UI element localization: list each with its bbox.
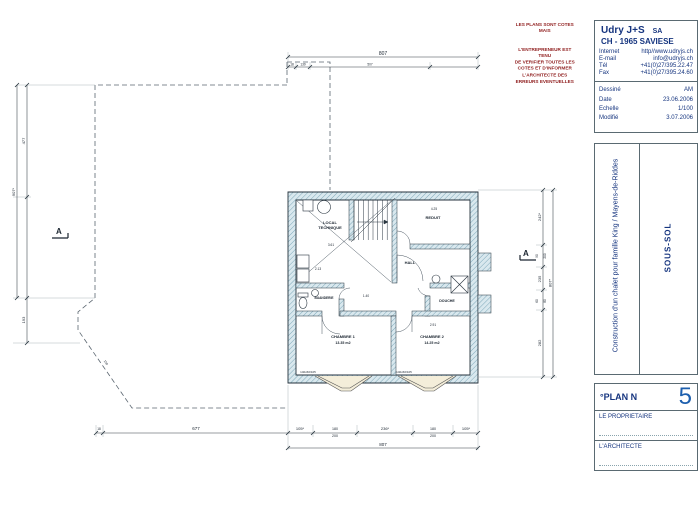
room-label-local2: TECHNIQUE (318, 225, 342, 230)
drawing-scale: 1/100 (678, 105, 693, 114)
dim-text: 807 (379, 51, 388, 57)
plan-number: 5 (679, 385, 692, 409)
disclaimer-line: ERREURS EVENTUELLES (512, 79, 578, 85)
shower-tray-icon (451, 276, 468, 293)
dim-text: 80 (543, 299, 547, 303)
dim-text: 18 (97, 427, 101, 431)
window-spec: 140x60/105 (300, 370, 316, 374)
room-label-buanderie: BUANDERIE (315, 296, 334, 300)
signature-line (599, 465, 693, 466)
dim-text: 242* (537, 212, 542, 221)
sheet-name: SOUS-SOL (664, 188, 673, 308)
dim-text: 193 (21, 316, 26, 323)
dim-text: 907* (11, 187, 16, 196)
firm-fax: +41(0)27/395.24.60 (640, 70, 693, 77)
titleblock-firm: Udry J+SSA CH - 1965 SAVIESE Internethtt… (594, 20, 698, 133)
dim-text: 180 (332, 427, 338, 431)
appliance-icon (297, 255, 309, 268)
dim-text: 200 (430, 434, 436, 438)
washbasin-icon (432, 275, 440, 283)
dim-text: 3.61 (328, 243, 334, 247)
window-spec: 140x60/105 (396, 370, 412, 374)
dim-text: 235 (537, 275, 542, 282)
drawn-by: AM (684, 86, 693, 95)
disclaimer-line: L'ENTREPRENEUR EST TENU (512, 47, 578, 60)
dim-text: 200 (332, 434, 338, 438)
room-area-chambre1: 13.35 m2 (335, 341, 350, 345)
tank-icon (303, 200, 313, 211)
dim-text: 2.13 (315, 267, 321, 271)
room-label-chambre1: CHAMBRE 1 (331, 334, 356, 339)
cross-hatch-marks (297, 201, 391, 282)
dim-text: 507 (367, 63, 373, 67)
owner-signature-label: LE PROPRIETAIRE (599, 414, 652, 420)
dim-text: 4.25 (431, 207, 437, 211)
appliance-icon (297, 269, 309, 282)
dim-text: 180 (430, 427, 436, 431)
room-label-douche: DOUCHE (439, 299, 455, 303)
toilet-icon (299, 298, 307, 309)
dim-text: 1.40 (363, 294, 369, 298)
room-label-chambre2: CHAMBRE 2 (420, 334, 445, 339)
room-label-reduit: REDUIT (426, 215, 441, 220)
drawing-date: 23.06.2006 (663, 96, 693, 105)
contact-label: E-mail (599, 56, 616, 63)
dim-text: 90 (535, 254, 539, 258)
meta-label: Modifié (599, 114, 618, 123)
dim-text: 477 (21, 137, 26, 144)
firm-name: Udry J+S (601, 25, 645, 36)
contact-label: Tél (599, 63, 607, 70)
meta-label: Echelle (599, 105, 619, 114)
plan-number-label: °PLAN N (600, 392, 637, 402)
interior-dimensions: 3.61 2.13 4.25 2.91 1.40 140x60/105 140x… (300, 207, 437, 374)
firm-website: http//www.udryjs.ch (641, 49, 693, 56)
dim-text: 150 (103, 359, 109, 366)
toilet-tank-icon (298, 293, 308, 297)
dim-text: 105* (296, 426, 305, 431)
dim-text: 807 (379, 442, 387, 447)
dim-text: 60 (535, 299, 539, 303)
divider (639, 144, 640, 374)
disclaimer-notes: LES PLANS SONT COTES MAIS L'ENTREPRENEUR… (512, 22, 578, 85)
contact-label: Internet (599, 49, 619, 56)
contact-label: Fax (599, 70, 609, 77)
dim-text: 807* (548, 278, 553, 287)
dim-text: 105* (462, 426, 471, 431)
dim-text: 139 (300, 63, 306, 67)
meta-label: Dessiné (599, 86, 621, 95)
titleblock-plan: °PLAN N 5 LE PROPRIETAIRE L'ARCHITECTE (594, 383, 698, 471)
light-wells (478, 253, 491, 313)
firm-phone: +41(0)27/395.22.47 (640, 63, 693, 70)
dim-text: 282 (537, 339, 542, 346)
section-marker-a-left: A (56, 227, 62, 236)
architect-signature-label: L'ARCHITECTE (599, 444, 642, 450)
dim-text: 236* (381, 426, 390, 431)
dim-text: 200 (543, 253, 547, 259)
section-marker-a-right: A (523, 249, 529, 258)
modified-date: 3.07.2006 (666, 114, 693, 123)
dim-text: 677 (192, 426, 200, 431)
dim-text: 18 (290, 63, 294, 67)
room-label-hall: HALL (405, 260, 416, 265)
boiler-icon (318, 201, 331, 214)
drawing-sheet: LOCAL TECHNIQUE REDUIT HALL BUANDERIE DO… (0, 0, 700, 500)
signature-line (599, 435, 693, 436)
room-area-chambre2: 14.25 m2 (424, 341, 439, 345)
disclaimer-line: LES PLANS SONT COTES MAIS (512, 22, 578, 35)
titleblock-project (594, 143, 698, 375)
disclaimer-line: COTES ET D'INFORMER (512, 66, 578, 72)
dim-text: 2.91 (430, 323, 436, 327)
firm-legal-form: SA (653, 28, 663, 35)
meta-label: Date (599, 96, 612, 105)
project-title: Construction d'un chalet pour famille Ki… (613, 140, 620, 372)
firm-email: info@udryjs.ch (653, 56, 693, 63)
staircase (351, 198, 395, 242)
firm-address: CH - 1965 SAVIESE (595, 36, 697, 49)
